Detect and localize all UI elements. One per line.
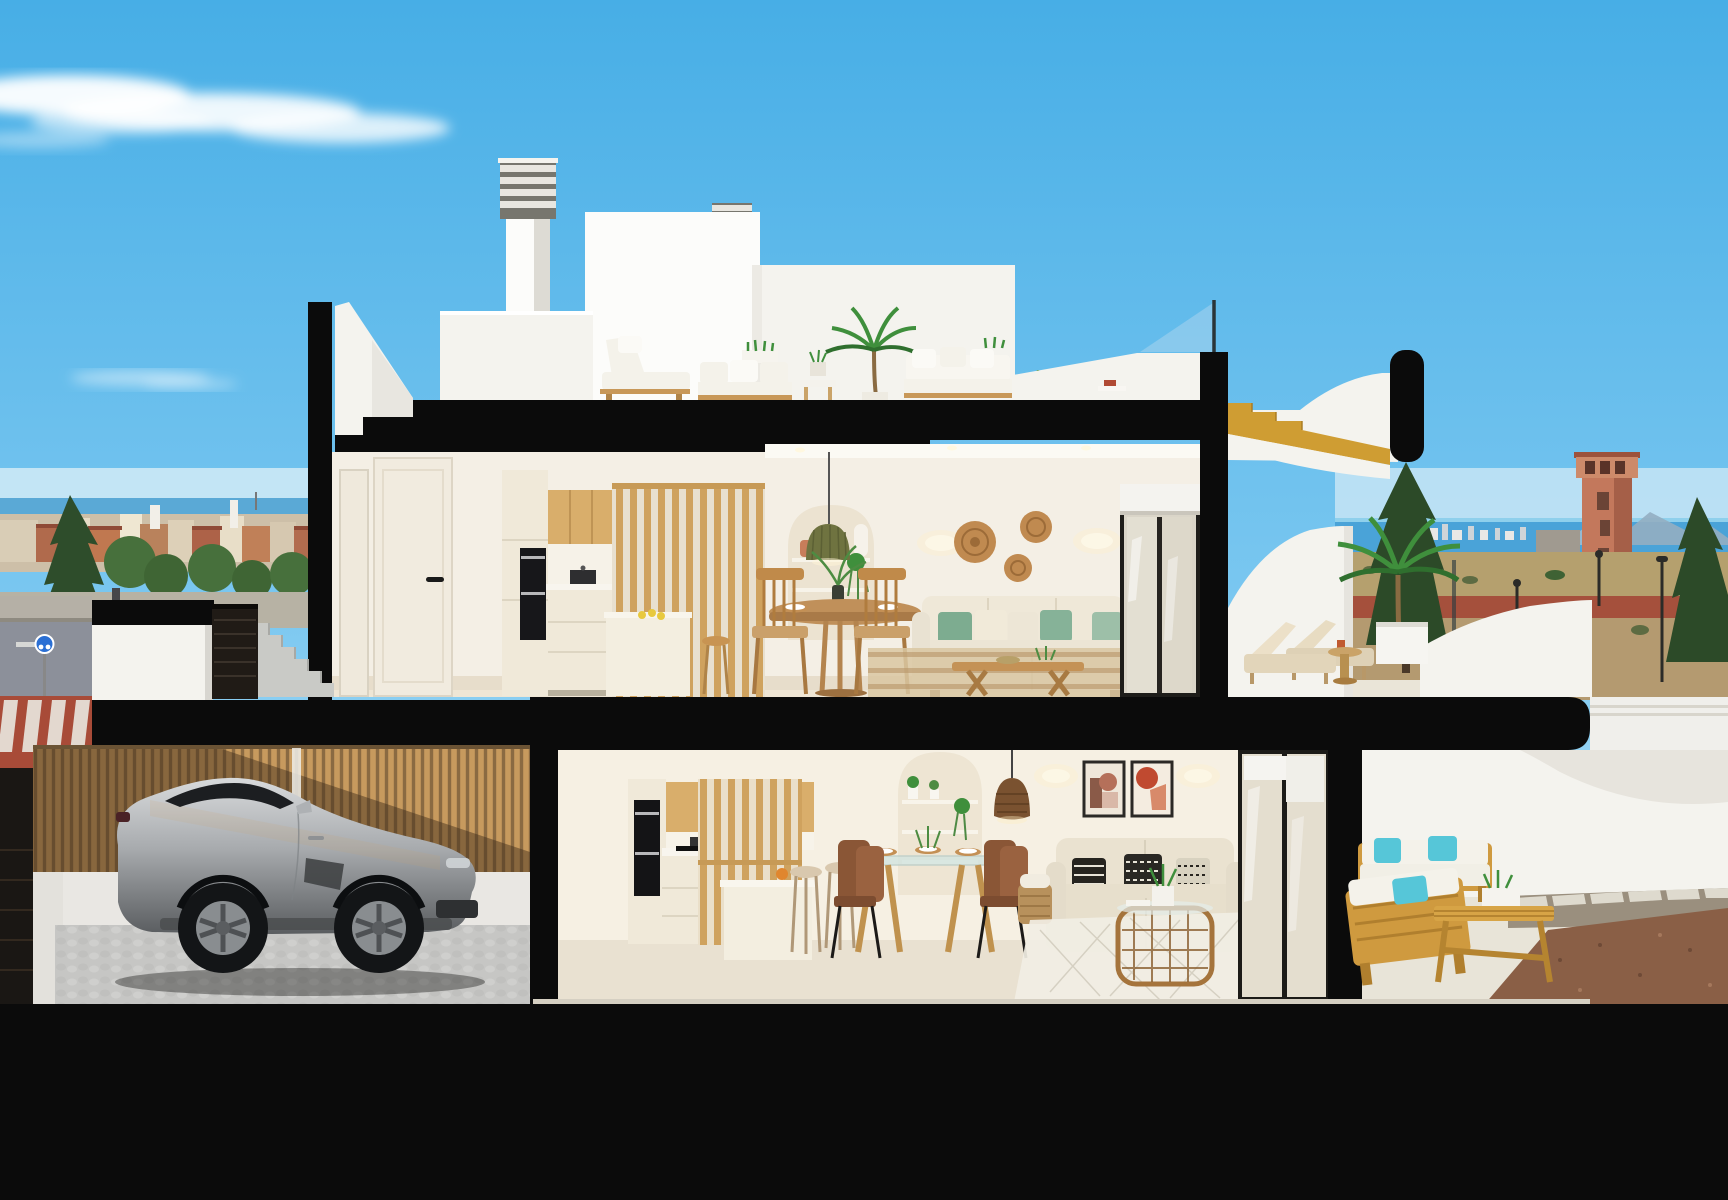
roof-black-cap xyxy=(1390,350,1424,462)
turquoise-pillow-2 xyxy=(1428,836,1457,861)
scene-render xyxy=(0,0,1728,1200)
car-taillight xyxy=(116,812,130,822)
roller-blind-box xyxy=(1120,484,1200,514)
cut-floor-slab-left xyxy=(92,700,533,747)
car-door-handle xyxy=(308,836,324,840)
chimney-left xyxy=(498,158,558,318)
bench-planter xyxy=(1482,888,1520,906)
niche-lower xyxy=(898,752,982,895)
turquoise-pillow-3 xyxy=(1392,875,1429,905)
entry-slab-band xyxy=(92,600,214,625)
lower-blind-right xyxy=(1286,756,1324,802)
lower-sliding-doors xyxy=(1240,752,1328,1002)
pot-on-hob xyxy=(570,570,596,584)
lower-island xyxy=(720,868,816,960)
art-frame-left xyxy=(1084,762,1124,816)
car-headlight xyxy=(446,858,470,868)
hall-door-secondary xyxy=(340,470,368,696)
wall-sconce-right xyxy=(1073,528,1121,554)
cut-column-left xyxy=(308,302,332,700)
door-handle xyxy=(426,577,444,582)
upper-sliding-door xyxy=(1120,484,1200,697)
base-cabinets xyxy=(548,590,614,690)
upper-floor xyxy=(332,444,1200,697)
palm-planter xyxy=(1376,622,1428,664)
upper-ceiling xyxy=(765,444,1200,458)
green-pillow xyxy=(938,612,972,644)
carport xyxy=(0,745,533,1005)
entry-gate xyxy=(212,604,258,699)
patio xyxy=(1344,750,1728,1005)
car-rear-wheel xyxy=(178,878,268,973)
lower-rug xyxy=(1014,912,1264,1002)
ground-cut-slab xyxy=(0,1004,1728,1200)
render-viewport xyxy=(0,0,1728,1200)
bar-stool xyxy=(702,636,730,646)
car-shadow xyxy=(115,968,485,996)
right-parapet-coping xyxy=(1590,697,1728,750)
cut-floor-slab-right xyxy=(963,697,1590,750)
turquoise-pillow-1 xyxy=(1374,838,1401,863)
art-frame-right xyxy=(1132,762,1172,816)
orange-fruit xyxy=(776,868,788,880)
cut-column-terrace xyxy=(1200,352,1228,702)
woven-basket xyxy=(1018,874,1052,924)
hall-door-main xyxy=(374,458,452,696)
cut-column-garage xyxy=(530,697,558,1005)
car-front-wheel xyxy=(334,878,424,973)
roof-parapet-low xyxy=(440,311,593,402)
upper-cabinets-oak xyxy=(548,490,612,544)
counter xyxy=(546,584,614,590)
upper-kitchen xyxy=(502,470,614,696)
entry-stair-wall xyxy=(92,625,213,701)
